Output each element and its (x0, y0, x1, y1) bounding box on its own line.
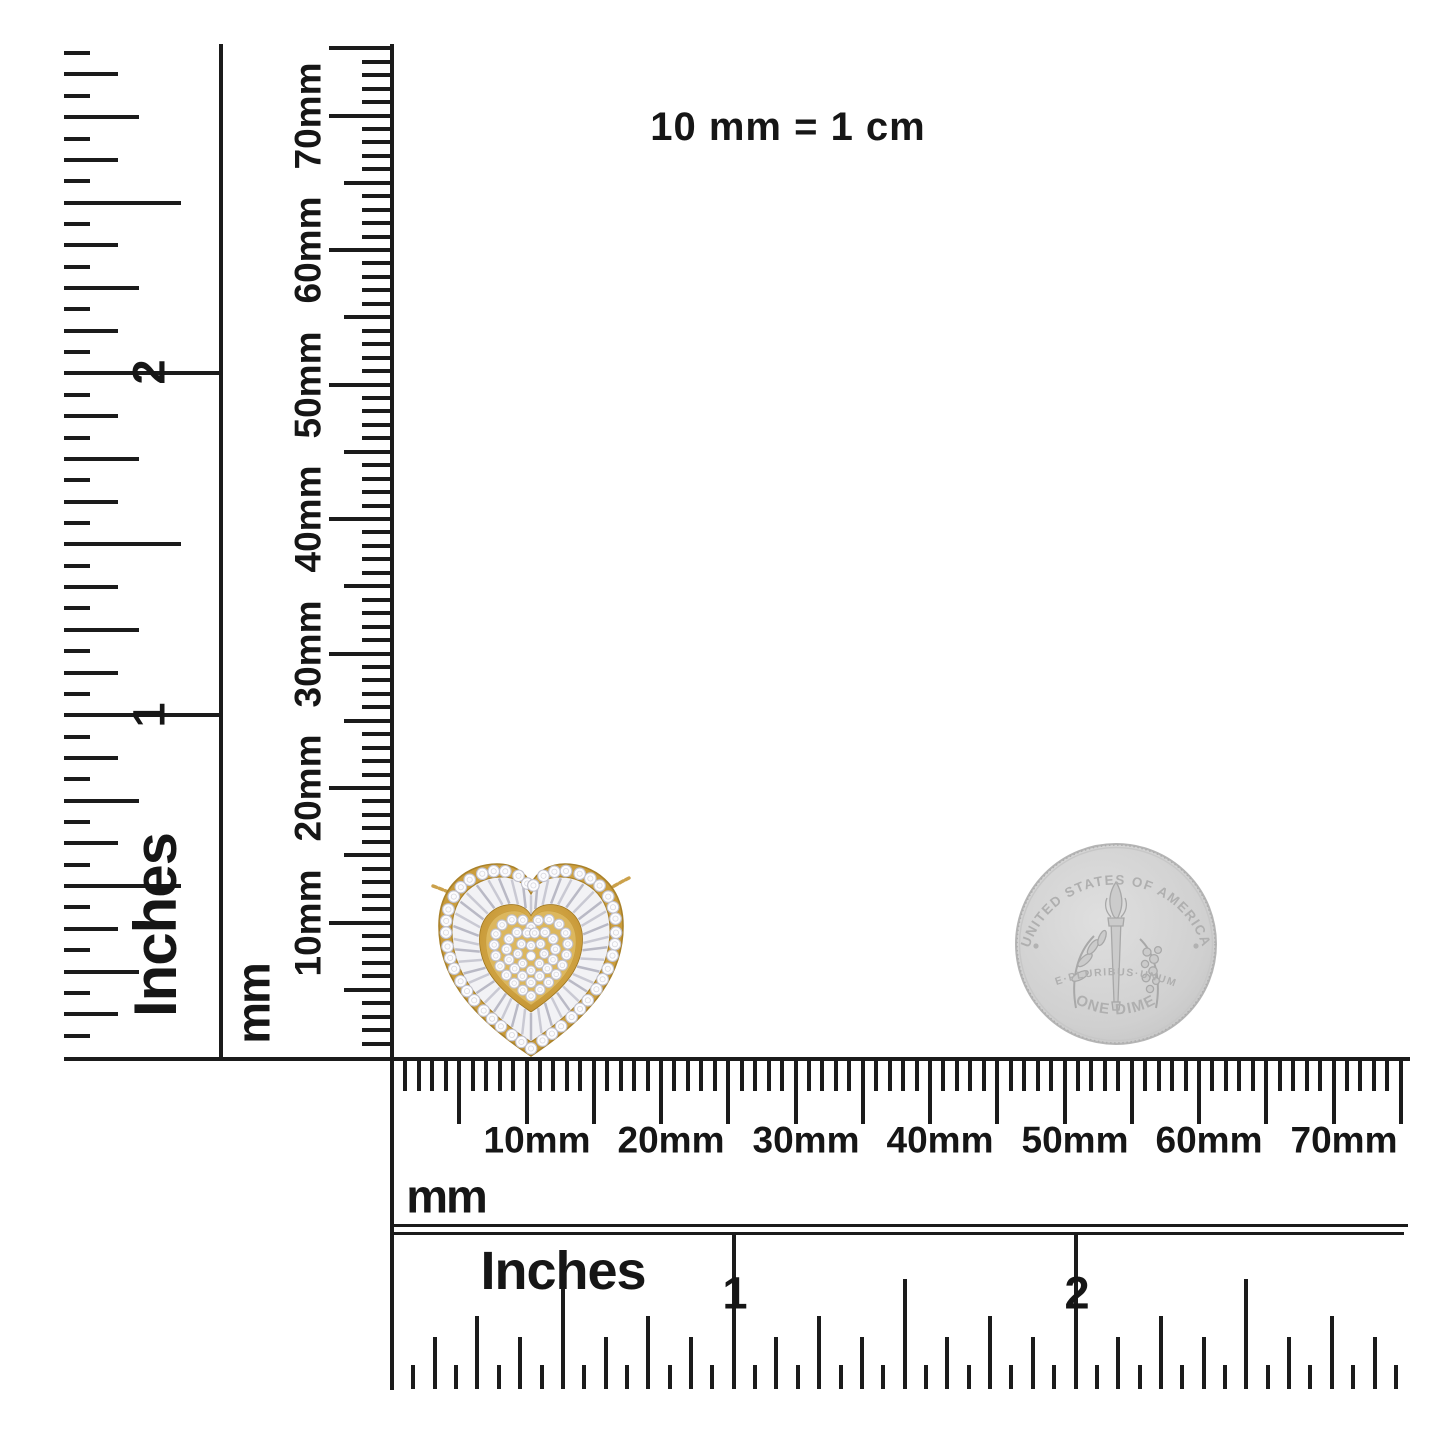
ruler-tick (362, 302, 392, 306)
ruler-tick (64, 436, 90, 440)
ruler-tick (64, 1034, 90, 1038)
ruler-tick (362, 342, 392, 346)
ruler-tick (454, 1365, 458, 1389)
ruler-tick (1332, 1058, 1336, 1124)
ruler-tick (497, 1365, 501, 1389)
scale-note: 10 mm = 1 cm (650, 107, 926, 147)
hin-numeral-2: 2 (1064, 1271, 1089, 1316)
ruler-tick (64, 606, 90, 610)
ruler-tick (362, 409, 392, 413)
ruler-tick (592, 1058, 596, 1124)
ruler-tick (64, 393, 90, 397)
ruler-tick (1351, 1365, 1355, 1389)
ruler-tick (362, 60, 392, 64)
ruler-tick (362, 208, 392, 212)
ruler-tick (64, 137, 90, 141)
ruler-tick (64, 329, 118, 333)
ruler-tick (329, 248, 392, 252)
ruler-tick (1031, 1337, 1035, 1389)
ruler-tick (1308, 1365, 1312, 1389)
ruler-tick (362, 947, 392, 951)
ruler-tick (64, 265, 90, 269)
ruler-tick (64, 179, 90, 183)
ruler-tick (968, 1058, 972, 1091)
ruler-tick (329, 921, 392, 925)
ruler-tick (362, 167, 392, 171)
ruler-tick (861, 1058, 865, 1124)
bottom-inch-ruler-top-line (392, 1232, 1404, 1235)
left-inch-ruler-edge-line (219, 44, 223, 1059)
ruler-tick (1202, 1337, 1206, 1389)
ruler-tick (1009, 1058, 1013, 1091)
ruler-tick (901, 1058, 905, 1091)
ruler-tick (1197, 1058, 1201, 1124)
ruler-tick (1266, 1365, 1270, 1389)
ruler-tick (362, 504, 392, 508)
ruler-tick (625, 1365, 629, 1389)
ruler-tick (988, 1316, 992, 1389)
ruler-tick (64, 457, 139, 461)
ruler-tick (847, 1058, 851, 1091)
ruler-tick (1278, 1058, 1282, 1091)
ruler-tick (888, 1058, 892, 1091)
ruler-tick (982, 1058, 986, 1091)
ruler-tick (64, 820, 90, 824)
ruler-tick (1009, 1365, 1013, 1389)
ruler-tick (1372, 1058, 1376, 1091)
ruler-tick (362, 665, 392, 669)
ruler-tick (924, 1365, 928, 1389)
ruler-tick (457, 1058, 461, 1124)
ruler-tick (1318, 1058, 1322, 1091)
ruler-tick (1305, 1058, 1309, 1091)
ruler-tick (475, 1316, 479, 1389)
ruler-tick (64, 521, 90, 525)
ruler-tick (64, 51, 90, 55)
hmm-label-70: 70mm (1291, 1122, 1398, 1159)
ruler-tick (362, 907, 392, 911)
ruler-tick (64, 799, 139, 803)
ruler-tick (64, 564, 90, 568)
ruler-tick (646, 1316, 650, 1389)
vmm-label-30: 30mm (290, 601, 327, 708)
ruler-tick (64, 671, 118, 675)
ruler-tick (774, 1337, 778, 1389)
ruler-tick (860, 1337, 864, 1389)
hmm-label-60: 60mm (1156, 1122, 1263, 1159)
ruler-tick (915, 1058, 919, 1091)
ruler-tick (329, 517, 392, 521)
ruler-tick (362, 692, 392, 696)
bottom-mm-ruler-top-line (64, 1057, 1410, 1061)
ruler-tick (411, 1365, 415, 1389)
ruler-tick (834, 1058, 838, 1091)
ruler-tick (540, 1365, 544, 1389)
ruler-tick (767, 1058, 771, 1091)
ruler-tick (64, 585, 118, 589)
ruler-tick (362, 1001, 392, 1005)
ruler-tick (796, 1365, 800, 1389)
ruler-tick (511, 1058, 515, 1091)
ruler-tick (1373, 1337, 1377, 1389)
ruler-tick (64, 72, 118, 76)
ruler-tick (928, 1058, 932, 1124)
ruler-tick (1022, 1058, 1026, 1091)
ruler-tick (1210, 1058, 1214, 1091)
ruler-tick (362, 746, 392, 750)
vin-numeral-2: 2 (127, 359, 172, 384)
ruler-tick (64, 115, 139, 119)
ruler-tick (1095, 1365, 1099, 1389)
ruler-tick (362, 974, 392, 978)
ruler-tick (329, 114, 392, 118)
ruler-tick (64, 307, 90, 311)
ruler-tick (1116, 1337, 1120, 1389)
ruler-tick (362, 1028, 392, 1032)
ruler-tick (498, 1058, 502, 1091)
ruler-tick (329, 652, 392, 656)
left-mm-ruler-edge-line (390, 44, 394, 1390)
ruler-tick (1291, 1058, 1295, 1091)
ruler-tick (471, 1058, 475, 1091)
vmm-unit-label: mm (230, 964, 277, 1044)
ruler-tick (344, 719, 392, 723)
ruler-tick (362, 73, 392, 77)
ruler-tick (64, 905, 90, 909)
ruler-tick (1143, 1058, 1147, 1091)
ruler-tick (807, 1058, 811, 1091)
hmm-label-10: 10mm (484, 1122, 591, 1159)
ruler-tick (417, 1058, 421, 1091)
ruler-tick (1184, 1058, 1188, 1091)
ruler-tick (941, 1058, 945, 1091)
ruler-tick (881, 1365, 885, 1389)
ruler-tick (362, 221, 392, 225)
ruler-tick (362, 544, 392, 548)
ruler-tick (64, 841, 118, 845)
hmm-unit-label: mm (406, 1173, 486, 1220)
ruler-tick (362, 87, 392, 91)
ruler-tick (817, 1316, 821, 1389)
ruler-tick (362, 1042, 392, 1046)
ruler-tick (551, 1058, 555, 1091)
ruler-tick (362, 826, 392, 830)
ruler-tick (362, 894, 392, 898)
ruler-tick (362, 127, 392, 131)
ruler-tick (362, 329, 392, 333)
ruler-tick (329, 383, 392, 387)
ruler-tick (1251, 1058, 1255, 1091)
ruler-tick (362, 288, 392, 292)
vin-numeral-1: 1 (127, 702, 172, 727)
ruler-tick (362, 477, 392, 481)
ruler-tick (362, 369, 392, 373)
ruler-tick (64, 756, 118, 760)
ruler-tick (672, 1058, 676, 1091)
ruler-tick (1223, 1365, 1227, 1389)
vmm-label-20: 20mm (290, 735, 327, 842)
ruler-tick (362, 396, 392, 400)
ruler-tick (1394, 1365, 1398, 1389)
ruler-tick (1063, 1058, 1067, 1124)
vmm-label-40: 40mm (290, 466, 327, 573)
ruler-tick (713, 1058, 717, 1091)
ruler-tick (430, 1058, 434, 1091)
ruler-tick (362, 154, 392, 158)
hin-unit-label: Inches (480, 1244, 645, 1298)
ruler-tick (1130, 1058, 1134, 1124)
ruler-tick (444, 1058, 448, 1091)
ruler-tick (64, 948, 90, 952)
hmm-label-50: 50mm (1022, 1122, 1129, 1159)
hmm-label-30: 30mm (753, 1122, 860, 1159)
ruler-tick (604, 1337, 608, 1389)
ruler-tick (344, 988, 392, 992)
ruler-tick (582, 1365, 586, 1389)
ruler-tick (362, 530, 392, 534)
ruler-tick (344, 584, 392, 588)
ruler-tick (686, 1058, 690, 1091)
ruler-tick (362, 799, 392, 803)
ruler-tick (1103, 1058, 1107, 1091)
ruler-tick (995, 1058, 999, 1124)
ruler-tick (632, 1058, 636, 1091)
ruler-tick (362, 436, 392, 440)
ruler-tick (565, 1058, 569, 1091)
ruler-tick (64, 1012, 118, 1016)
ruler-tick (64, 542, 181, 546)
ruler-tick (362, 611, 392, 615)
ruler-tick (903, 1279, 907, 1389)
ruler-tick (362, 598, 392, 602)
ruler-tick (362, 880, 392, 884)
ruler-tick (64, 243, 118, 247)
ruler-tick (64, 500, 118, 504)
ruler-tick (362, 867, 392, 871)
ruler-tick (1330, 1316, 1334, 1389)
ruler-tick (362, 557, 392, 561)
ruler-tick (403, 1058, 407, 1091)
ruler-tick (64, 158, 118, 162)
ruler-tick (64, 628, 139, 632)
ruler-tick (362, 934, 392, 938)
ruler-tick (362, 840, 392, 844)
vin-unit-label: Inches (126, 833, 186, 1017)
ruler-tick (362, 100, 392, 104)
ruler-tick (689, 1337, 693, 1389)
ruler-tick (874, 1058, 878, 1091)
ruler-tick (967, 1365, 971, 1389)
ruler-tick (820, 1058, 824, 1091)
ruler-tick (362, 961, 392, 965)
ruler-tick (64, 286, 139, 290)
ruler-tick (1138, 1365, 1142, 1389)
ruler-tick (1157, 1058, 1161, 1091)
ruler-tick (329, 786, 392, 790)
ruler-tick (619, 1058, 623, 1091)
ruler-tick (344, 853, 392, 857)
ruler-tick (1159, 1316, 1163, 1389)
ruler-tick (362, 705, 392, 709)
ruler-tick (753, 1058, 757, 1091)
ruler-tick (1036, 1058, 1040, 1091)
ruler-tick (344, 450, 392, 454)
ruler-tick (710, 1365, 714, 1389)
ruler-tick (64, 94, 90, 98)
heart-pendant-image (431, 850, 631, 1062)
ruler-tick (362, 275, 392, 279)
ruler-tick (955, 1058, 959, 1091)
ruler-tick (362, 356, 392, 360)
ruler-tick (64, 201, 181, 205)
ruler-tick (1076, 1058, 1080, 1091)
ruler-tick (646, 1058, 650, 1091)
ruler-tick (1399, 1058, 1403, 1124)
ruler-tick (362, 813, 392, 817)
ruler-tick (1345, 1058, 1349, 1091)
vmm-label-10: 10mm (290, 870, 327, 977)
ruler-tick (362, 1015, 392, 1019)
ruler-tick (362, 773, 392, 777)
ruler-tick (1385, 1058, 1389, 1091)
ruler-tick (1264, 1058, 1268, 1124)
ruler-tick (329, 46, 392, 50)
ruler-tick (362, 571, 392, 575)
hmm-label-40: 40mm (887, 1122, 994, 1159)
ruler-tick (1358, 1058, 1362, 1091)
ruler-tick (362, 423, 392, 427)
ruler-tick (1089, 1058, 1093, 1091)
ruler-tick (668, 1365, 672, 1389)
ruler-tick (1180, 1365, 1184, 1389)
ruler-tick (362, 759, 392, 763)
dime-coin-image: UNITED STATES OF AMERICA ONE DIME E·PLUR… (1014, 842, 1218, 1046)
ruler-tick (433, 1337, 437, 1389)
ruler-tick (64, 414, 118, 418)
ruler-tick (839, 1365, 843, 1389)
hmm-label-20: 20mm (618, 1122, 725, 1159)
ruler-tick (64, 692, 90, 696)
ruler-tick (362, 625, 392, 629)
ruler-tick (726, 1058, 730, 1124)
hin-numeral-1: 1 (722, 1271, 747, 1316)
bottom-mm-ruler-bottom-line (392, 1224, 1408, 1227)
vmm-label-60: 60mm (290, 197, 327, 304)
ruler-tick (362, 194, 392, 198)
ruler-tick (945, 1337, 949, 1389)
ruler-tick (1052, 1365, 1056, 1389)
ruler-tick (64, 735, 90, 739)
ruler-tick (64, 222, 90, 226)
ruler-tick (1224, 1058, 1228, 1091)
ruler-tick (64, 863, 90, 867)
ruler-tick (659, 1058, 663, 1124)
ruler-tick (525, 1058, 529, 1124)
ruler-tick (64, 350, 90, 354)
ruler-tick (1049, 1058, 1053, 1091)
ruler-tick (1244, 1279, 1248, 1389)
ruler-tick (1116, 1058, 1120, 1091)
ruler-tick (362, 638, 392, 642)
ruler-tick (64, 478, 90, 482)
ruler-tick (538, 1058, 542, 1091)
ruler-tick (518, 1337, 522, 1389)
ruler-tick (1287, 1337, 1291, 1389)
ruler-tick (64, 991, 90, 995)
ruler-tick (1170, 1058, 1174, 1091)
ruler-tick (344, 181, 392, 185)
vmm-label-70: 70mm (290, 63, 327, 170)
ruler-tick (780, 1058, 784, 1091)
ruler-tick (578, 1058, 582, 1091)
ruler-tick (64, 927, 118, 931)
ruler-tick (362, 140, 392, 144)
vmm-label-50: 50mm (290, 332, 327, 439)
ruler-tick (740, 1058, 744, 1091)
ruler-tick (362, 490, 392, 494)
ruler-tick (64, 649, 90, 653)
scale-photo-canvas: 10 mm = 1 cm 70mm 60mm 50mm 40mm 30mm 20… (0, 0, 1445, 1445)
ruler-tick (362, 732, 392, 736)
ruler-tick (362, 261, 392, 265)
ruler-tick (362, 678, 392, 682)
ruler-tick (794, 1058, 798, 1124)
ruler-tick (699, 1058, 703, 1091)
ruler-tick (1237, 1058, 1241, 1091)
ruler-tick (344, 315, 392, 319)
ruler-tick (362, 463, 392, 467)
ruler-tick (362, 235, 392, 239)
ruler-tick (753, 1365, 757, 1389)
ruler-tick (484, 1058, 488, 1091)
ruler-tick (605, 1058, 609, 1091)
ruler-tick (64, 777, 90, 781)
